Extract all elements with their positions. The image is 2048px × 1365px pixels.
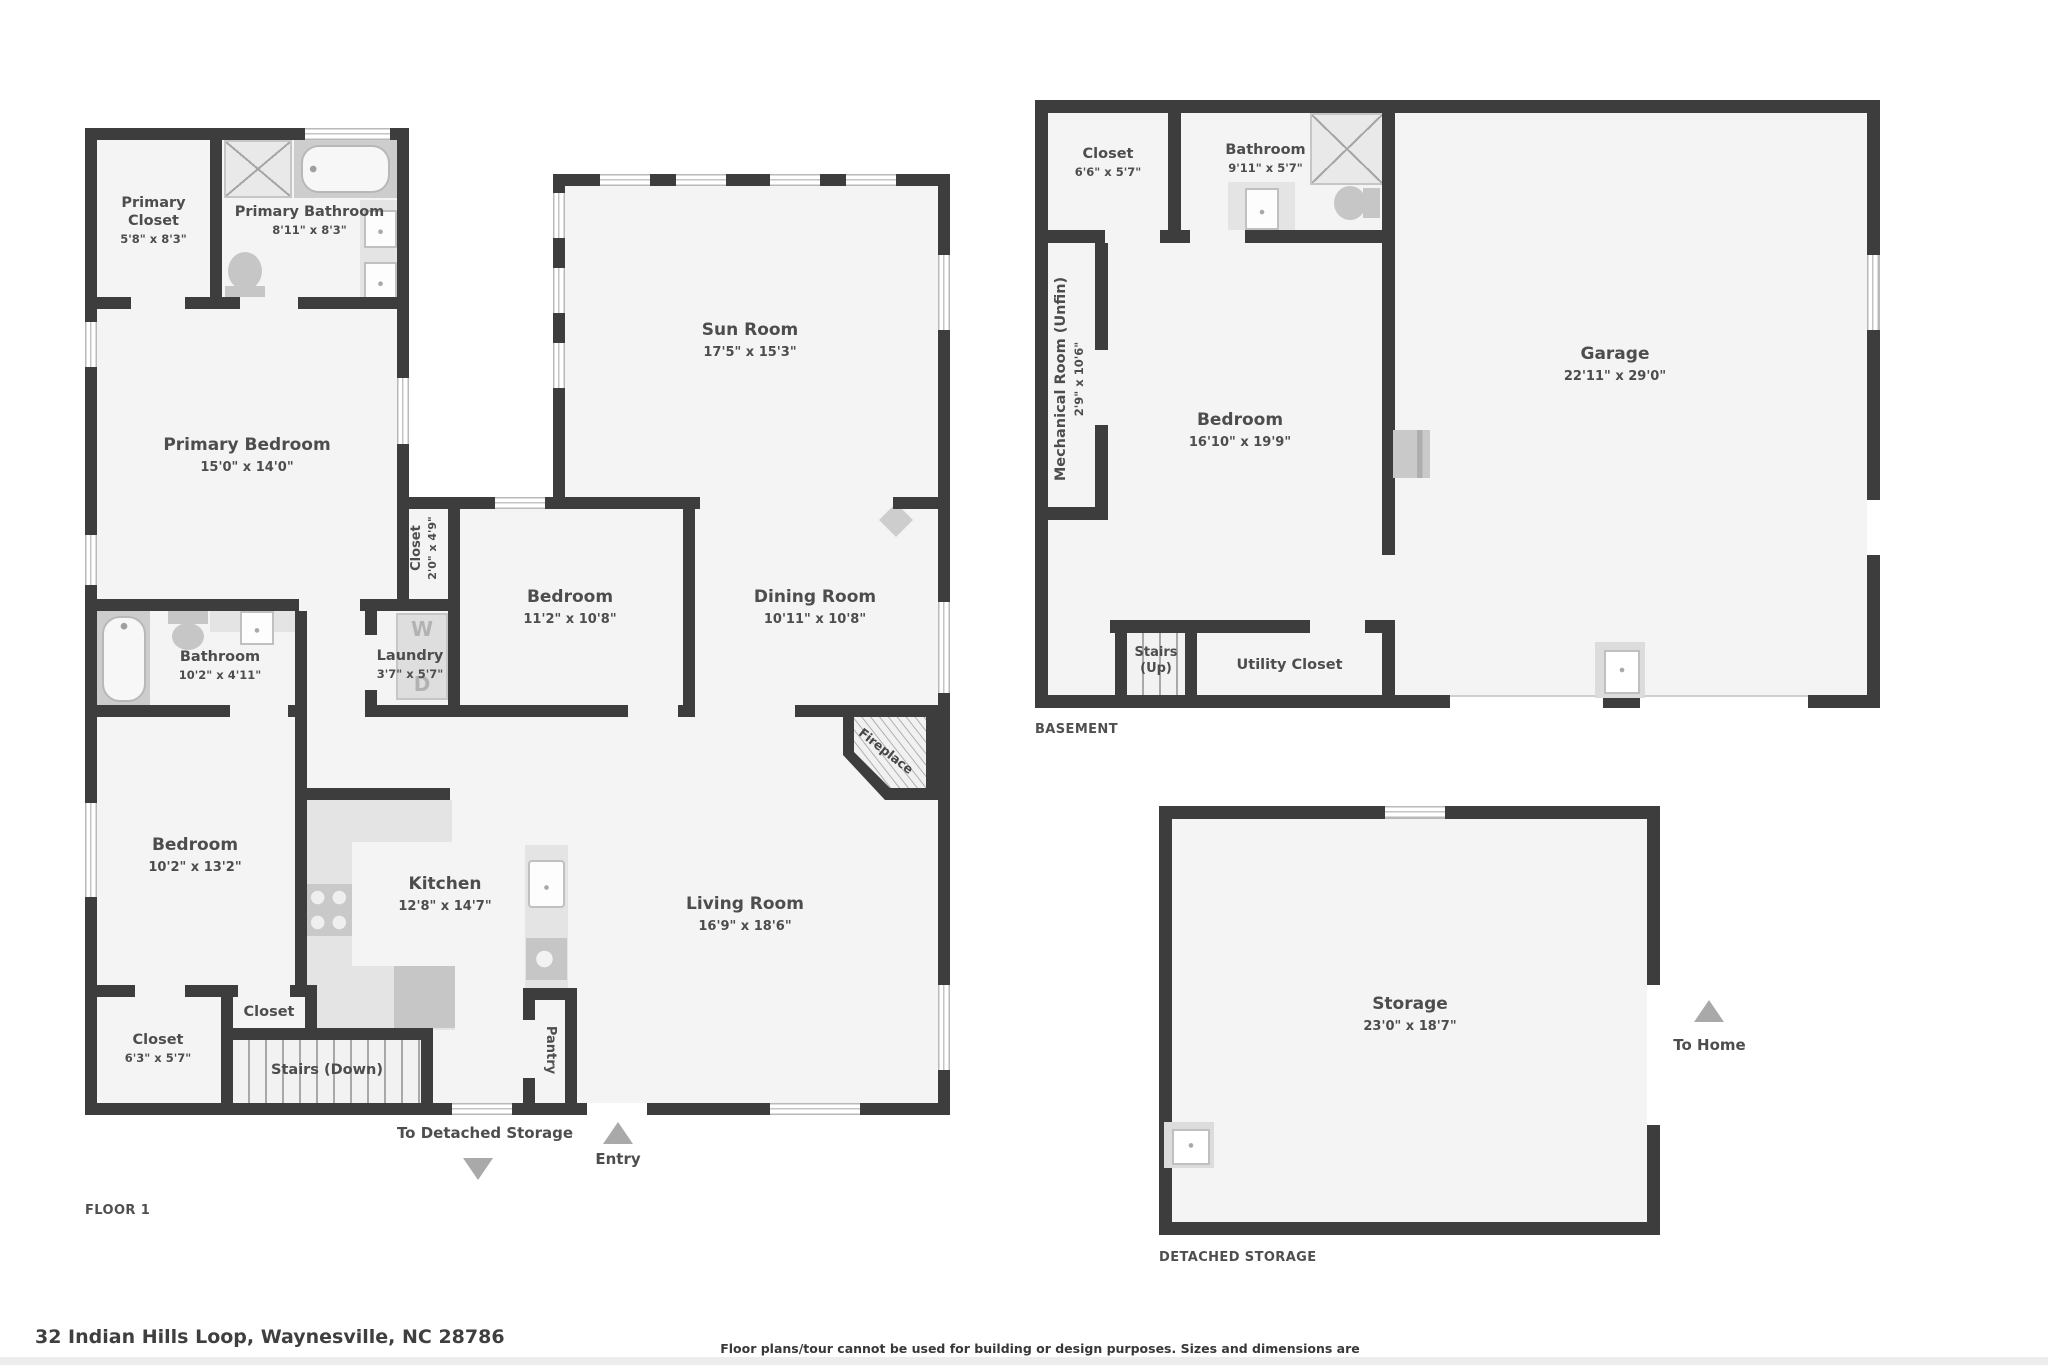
wall [1159, 1222, 1660, 1235]
wall [210, 128, 222, 309]
room-name: Bedroom [527, 587, 613, 608]
room-name: Closet [133, 1031, 184, 1049]
stove-icon [305, 884, 352, 936]
room-label-primary-bathroom: Primary Bathroom 8'11" x 8'3" [222, 190, 397, 250]
wall [1035, 507, 1108, 520]
room-label-primary-closet: Primary Closet 5'8" x 8'3" [97, 150, 210, 290]
room-label-stairs-down: Stairs (Down) [233, 1055, 421, 1085]
room-name: Dining Room [754, 587, 876, 608]
room-name: Utility Closet [1236, 656, 1342, 674]
room-label-garage: Garage 22'11" x 29'0" [1515, 332, 1715, 396]
utility-sink-icon [1604, 650, 1640, 694]
washer-letter: W [411, 619, 433, 639]
floor1-plan-label: FLOOR 1 [85, 1203, 150, 1218]
room-label-living-room: Living Room 16'9" x 18'6" [645, 882, 845, 946]
wall [295, 599, 307, 717]
room-label-bathroom: Bathroom 10'2" x 4'11" [150, 638, 290, 692]
window [938, 602, 950, 693]
room-name: Mechanical Room (Unfin) [1052, 277, 1070, 481]
door-opening [299, 599, 360, 611]
room-name: Bathroom [180, 648, 260, 666]
entry-label: Entry [578, 1150, 658, 1168]
room-label-small-closet: Closet [221, 997, 317, 1027]
room-name: Garage [1581, 344, 1650, 365]
room-label-dining-room: Dining Room 10'11" x 10'8" [715, 575, 915, 639]
door-opening [628, 705, 678, 717]
room-name: Stairs (Up) [1124, 645, 1188, 678]
basement-plan-label: BASEMENT [1035, 722, 1118, 737]
door-opening [1190, 230, 1245, 243]
storage-door-opening [452, 1103, 512, 1115]
room-dims: 15'0" x 14'0" [200, 460, 293, 475]
room-name: Kitchen [409, 874, 482, 895]
door-opening [131, 297, 185, 309]
room-dims: 10'2" x 4'11" [179, 668, 261, 682]
wall [365, 705, 460, 717]
wall [683, 497, 695, 717]
room-dims: 5'8" x 8'3" [120, 232, 186, 246]
room-dims: 22'11" x 29'0" [1564, 369, 1666, 384]
door-opening [240, 297, 298, 309]
room-label-stairs-up: Stairs (Up) [1124, 630, 1188, 692]
room-name: Closet [1083, 145, 1134, 163]
door-opening [523, 1020, 535, 1078]
door-opening [1382, 555, 1395, 620]
room-dims: 3'7" x 5'7" [377, 667, 443, 681]
window [85, 535, 97, 585]
room-name: Primary Bathroom [235, 203, 385, 221]
room-dims: 17'5" x 15'3" [703, 345, 796, 360]
toilet-icon [228, 252, 262, 290]
room-dims: 6'6" x 5'7" [1075, 165, 1141, 179]
bathtub-icon [301, 145, 390, 193]
room-label-laundry: Laundry 3'7" x 5'7" [360, 641, 460, 687]
wall [795, 705, 843, 717]
window [397, 378, 409, 444]
door-opening [1310, 620, 1365, 633]
room-label-utility-closet: Utility Closet [1197, 650, 1382, 680]
room-label-mechanical-room: Mechanical Room (Unfin) 2'9" x 10'6" [1047, 254, 1091, 504]
door-opening [230, 705, 288, 717]
door-opening [1867, 500, 1880, 555]
room-name: Primary Bedroom [163, 435, 330, 456]
room-dims: 12'8" x 14'7" [398, 899, 491, 914]
room-name: Laundry [377, 647, 444, 665]
window [1385, 806, 1445, 819]
room-dims: 9'11" x 5'7" [1228, 161, 1302, 175]
door-opening [1095, 350, 1108, 425]
window [553, 268, 565, 313]
sink-icon [1245, 188, 1279, 230]
door-opening [135, 985, 185, 997]
room-dims: 23'0" x 18'7" [1363, 1019, 1456, 1034]
room-label-bedroom-left: Bedroom 10'2" x 13'2" [95, 823, 295, 887]
room-name: Storage [1372, 994, 1448, 1015]
wall [85, 599, 460, 611]
window [600, 174, 650, 186]
room-dims: 16'10" x 19'9" [1189, 435, 1291, 450]
room-name: Bedroom [1197, 410, 1283, 431]
wall [295, 705, 307, 997]
room-name: Stairs (Down) [271, 1061, 383, 1079]
room-label-bedroom: Bedroom 16'10" x 19'9" [1140, 398, 1340, 462]
window [846, 174, 896, 186]
room-dims: 8'11" x 8'3" [272, 223, 346, 237]
sink-icon [364, 262, 397, 300]
room-dims: 6'3" x 5'7" [125, 1051, 191, 1065]
wall [893, 497, 950, 509]
detached-storage-plan-label: DETACHED STORAGE [1159, 1250, 1317, 1265]
window [938, 985, 950, 1070]
wall [1168, 100, 1181, 243]
water-heater-icon [1393, 430, 1430, 478]
room-label-sun-room: Sun Room 17'5" x 15'3" [650, 305, 850, 375]
bottom-divider [0, 1357, 2048, 1365]
room-name: Pantry [542, 1026, 558, 1074]
entry-door-opening [587, 1103, 647, 1115]
entry-arrow-icon [603, 1122, 633, 1144]
toilet-icon [1334, 186, 1366, 220]
door-opening [1105, 230, 1160, 243]
wall [295, 788, 450, 800]
room-label-pantry: Pantry [540, 1005, 560, 1095]
room-label-bathroom: Bathroom 9'11" x 5'7" [1183, 128, 1348, 188]
wall [553, 497, 700, 509]
room-name: Bedroom [152, 835, 238, 856]
window [85, 322, 97, 367]
to-home-label: To Home [1662, 1036, 1757, 1054]
room-dims: 2'0" x 4'9" [426, 516, 439, 580]
wall [1035, 100, 1880, 113]
window [553, 343, 565, 388]
room-dims: 10'2" x 13'2" [148, 860, 241, 875]
room-label-storage: Storage 23'0" x 18'7" [1310, 982, 1510, 1046]
room-label-corner-closet: Closet 6'3" x 5'7" [96, 1018, 220, 1078]
window [495, 497, 545, 509]
room-name: Closet [409, 525, 425, 571]
to-detached-storage-label: To Detached Storage [360, 1124, 610, 1142]
property-address: 32 Indian Hills Loop, Waynesville, NC 28… [35, 1326, 505, 1348]
room-label-bedroom-middle: Bedroom 11'2" x 10'8" [470, 575, 670, 639]
window [553, 193, 565, 238]
window [305, 128, 390, 140]
door-opening [1048, 620, 1110, 633]
window [938, 255, 950, 330]
room-label-hall-closet: Closet 2'0" x 4'9" [406, 493, 442, 603]
utility-sink-icon [1172, 1129, 1210, 1165]
wall [565, 1000, 577, 1103]
room-dims: 10'11" x 10'8" [764, 612, 866, 627]
door-opening [1647, 985, 1660, 1125]
home-arrow-icon [1694, 1000, 1724, 1022]
floor-plan-page: W D [0, 0, 2048, 1365]
wall [221, 1028, 433, 1040]
wall [523, 988, 577, 1000]
room-name: Primary Closet [97, 194, 210, 230]
room-name: Closet [244, 1003, 295, 1021]
storage-arrow-icon [463, 1158, 493, 1180]
bathtub-icon [102, 616, 146, 702]
room-name: Bathroom [1225, 141, 1305, 159]
room-name: Living Room [686, 894, 804, 915]
wall [1867, 100, 1880, 708]
kitchen-sink-icon [528, 860, 565, 908]
room-dims: 11'2" x 10'8" [523, 612, 616, 627]
refrigerator-icon [394, 966, 455, 1028]
room-dims: 2'9" x 10'6" [1072, 342, 1086, 416]
window [770, 1103, 860, 1115]
wall [421, 1028, 433, 1115]
room-label-primary-bedroom: Primary Bedroom 15'0" x 14'0" [117, 420, 377, 490]
room-name: Sun Room [702, 320, 799, 341]
window [770, 174, 820, 186]
window [1867, 255, 1880, 330]
room-label-closet: Closet 6'6" x 5'7" [1048, 132, 1168, 192]
door-opening [238, 985, 290, 997]
room-label-kitchen: Kitchen 12'8" x 14'7" [360, 862, 530, 926]
room-dims: 16'9" x 18'6" [698, 919, 791, 934]
wall [85, 128, 97, 1115]
bar-sink-icon [526, 938, 567, 980]
wall [1159, 806, 1172, 1235]
window [676, 174, 726, 186]
